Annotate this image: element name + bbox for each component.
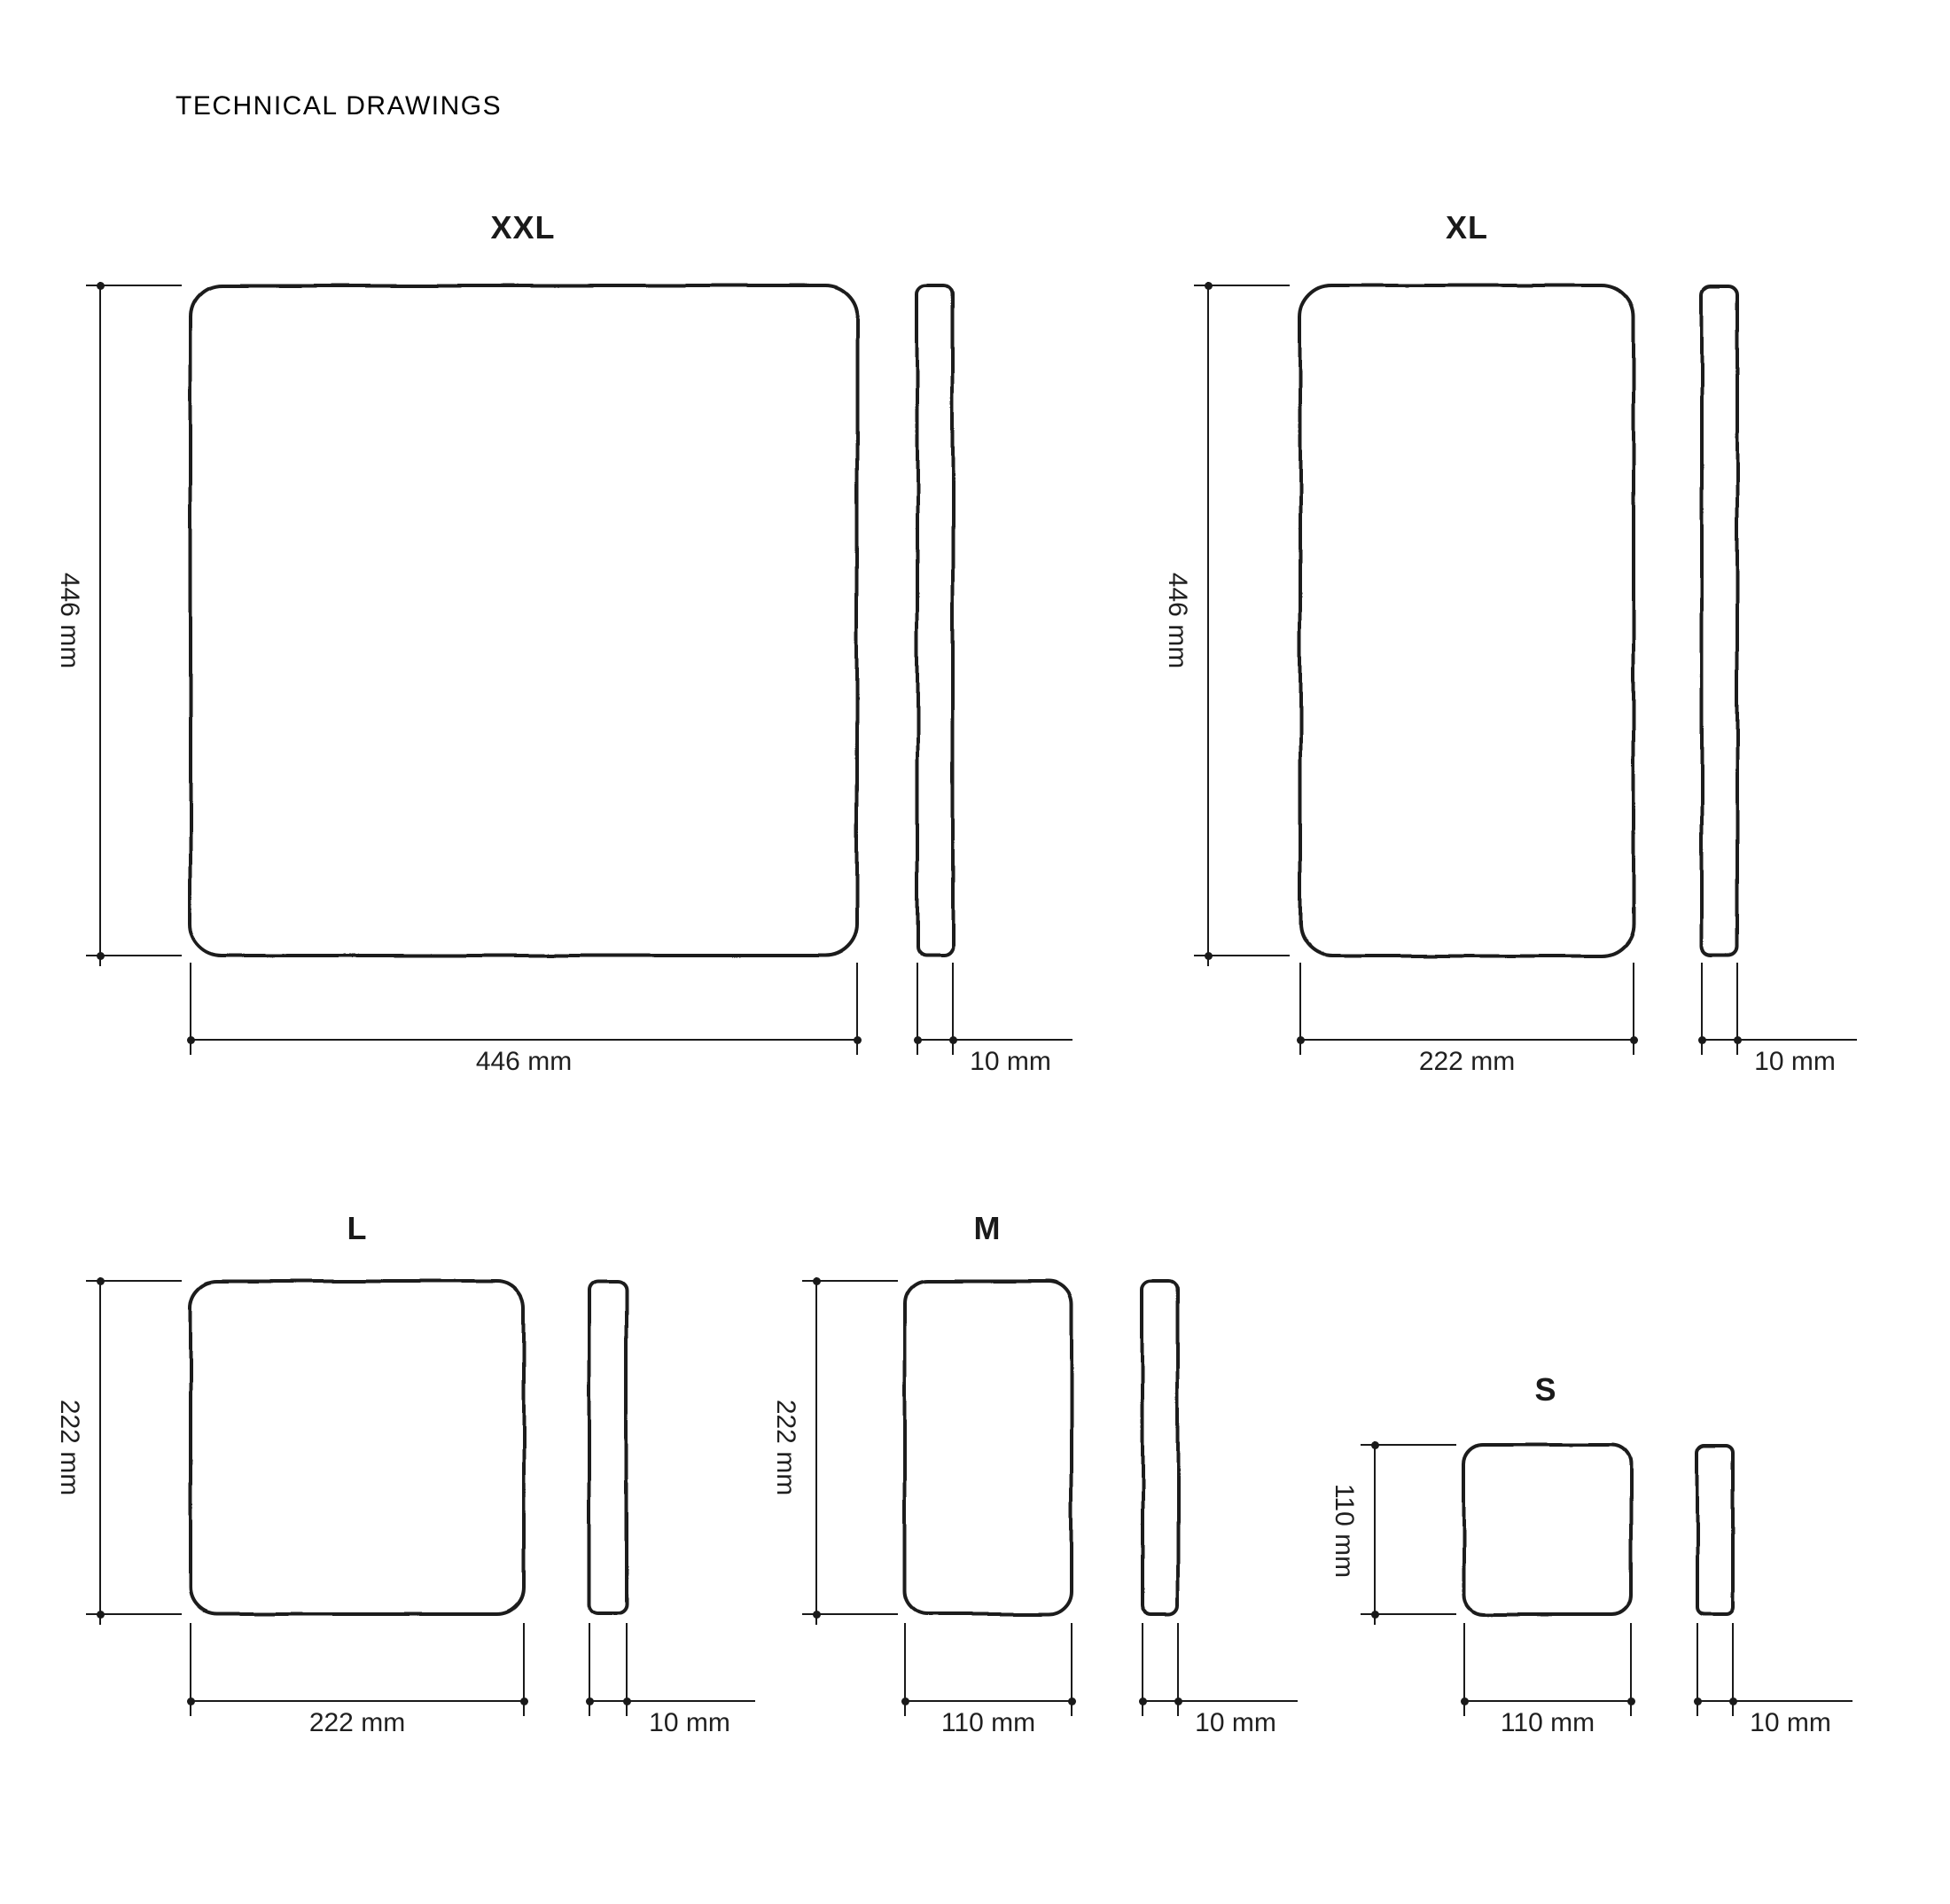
dimension-dot <box>1698 1036 1706 1044</box>
dimension-dot <box>1734 1036 1742 1044</box>
dimension-dot <box>97 282 105 290</box>
height-dimension-label: 222 mm <box>770 1400 800 1495</box>
front-view <box>894 1270 1082 1625</box>
height-dimension-line <box>1374 1441 1376 1625</box>
height-dimension-line <box>815 1277 817 1625</box>
width-dimension-label: 222 mm <box>309 1708 405 1738</box>
height-dimension-line <box>99 1277 101 1625</box>
thickness-dimension-label: 10 mm <box>1195 1708 1276 1738</box>
side-view <box>579 1270 637 1625</box>
thickness-dimension-line <box>1697 1700 1852 1702</box>
dimension-dot <box>1297 1036 1305 1044</box>
size-label: M <box>974 1210 1002 1247</box>
width-dimension-label: 446 mm <box>476 1047 572 1077</box>
dimension-dot <box>813 1611 821 1619</box>
dimension-dot <box>1694 1697 1702 1705</box>
thickness-dimension-label: 10 mm <box>649 1708 730 1738</box>
height-dimension-label: 446 mm <box>54 573 84 668</box>
height-dimension-label: 110 mm <box>1329 1484 1359 1578</box>
dimension-dot <box>901 1697 909 1705</box>
front-view <box>180 275 868 966</box>
dimension-dot <box>854 1036 862 1044</box>
dimension-dot <box>949 1036 957 1044</box>
height-dimension-line <box>99 282 101 966</box>
height-dimension-line <box>1207 282 1209 966</box>
width-dimension-label: 110 mm <box>1501 1708 1595 1738</box>
dimension-dot <box>1139 1697 1147 1705</box>
dimension-dot <box>97 1611 105 1619</box>
dimension-dot <box>813 1277 821 1285</box>
size-label: L <box>347 1210 368 1247</box>
thickness-dimension-label: 10 mm <box>970 1047 1051 1077</box>
dimension-dot <box>1630 1036 1638 1044</box>
front-view <box>1454 1434 1642 1625</box>
dimension-dot <box>1627 1697 1635 1705</box>
front-view <box>180 1270 534 1625</box>
dimension-dot <box>97 952 105 960</box>
dimension-dot <box>97 1277 105 1285</box>
thickness-dimension-label: 10 mm <box>1754 1047 1836 1077</box>
dimension-dot <box>1729 1697 1737 1705</box>
dimension-dot <box>520 1697 528 1705</box>
dimension-dot <box>1205 952 1213 960</box>
dimension-dot <box>623 1697 631 1705</box>
thickness-dimension-label: 10 mm <box>1750 1708 1831 1738</box>
height-dimension-label: 446 mm <box>1162 573 1192 668</box>
dimension-dot <box>1068 1697 1076 1705</box>
dimension-dot <box>914 1036 922 1044</box>
thickness-dimension-line <box>917 1039 1072 1041</box>
height-dimension-label: 222 mm <box>54 1400 84 1495</box>
technical-drawing-sheet: TECHNICAL DRAWINGS XXL446 mm446 mm10 mmX… <box>0 0 1950 1904</box>
size-label: XL <box>1446 209 1488 246</box>
dimension-dot <box>187 1697 195 1705</box>
width-dimension-line <box>191 1700 524 1702</box>
width-dimension-line <box>191 1039 857 1041</box>
size-label: XXL <box>490 209 555 246</box>
side-view <box>907 275 963 966</box>
front-view <box>1290 275 1644 966</box>
width-dimension-line <box>1464 1700 1631 1702</box>
dimension-dot <box>586 1697 594 1705</box>
page-title: TECHNICAL DRAWINGS <box>175 91 502 121</box>
side-view <box>1691 275 1748 966</box>
dimension-dot <box>1205 282 1213 290</box>
side-view <box>1132 1270 1189 1625</box>
width-dimension-line <box>905 1700 1072 1702</box>
width-dimension-line <box>1300 1039 1634 1041</box>
width-dimension-label: 110 mm <box>941 1708 1035 1738</box>
dimension-dot <box>1371 1441 1379 1449</box>
dimension-dot <box>1461 1697 1469 1705</box>
dimension-dot <box>187 1036 195 1044</box>
thickness-dimension-line <box>589 1700 755 1702</box>
dimension-dot <box>1174 1697 1182 1705</box>
thickness-dimension-line <box>1702 1039 1857 1041</box>
side-view <box>1687 1434 1743 1625</box>
dimension-dot <box>1371 1611 1379 1619</box>
width-dimension-label: 222 mm <box>1419 1047 1515 1077</box>
thickness-dimension-line <box>1143 1700 1298 1702</box>
size-label: S <box>1534 1371 1556 1408</box>
